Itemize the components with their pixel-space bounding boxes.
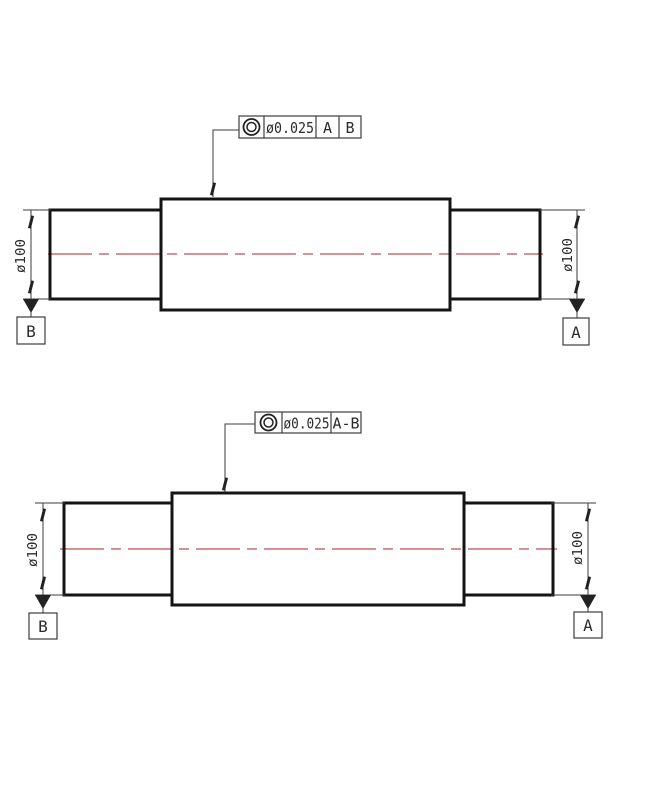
- diameter-dim-label: ø100: [570, 531, 586, 565]
- dimension-tick: [40, 576, 46, 589]
- datum-box-label: B: [38, 617, 48, 636]
- datum-box-label: A: [571, 323, 581, 342]
- fcf-leader-line: [213, 130, 239, 197]
- fcf-leader-line: [225, 424, 255, 492]
- dimension-left: ø100 B: [13, 210, 51, 344]
- dimension-tick: [28, 280, 34, 293]
- dimension-tick: [574, 215, 580, 228]
- fcf-datum-ref: A: [323, 119, 332, 137]
- leader-tick: [210, 182, 216, 195]
- datum-triangle: [23, 299, 39, 313]
- dimension-tick: [585, 576, 591, 589]
- shaft-drawing-bottom: ø100 B ø100 A: [25, 412, 602, 639]
- diameter-dim-label: ø100: [560, 238, 576, 272]
- fcf-tolerance-value: ø0.025: [266, 119, 314, 137]
- dimension-tick: [40, 508, 46, 521]
- datum-triangle: [580, 595, 596, 609]
- datum-triangle: [569, 299, 585, 313]
- dimension-tick: [574, 280, 580, 293]
- fcf-datum-ref: B: [345, 119, 354, 137]
- datum-triangle: [35, 595, 51, 609]
- feature-control-frame-top: ø0.025 A B: [239, 116, 361, 138]
- dimension-right: ø100 A: [539, 210, 589, 345]
- datum-box-label: A: [583, 616, 593, 635]
- diameter-dim-label: ø100: [13, 239, 29, 273]
- shaft-drawing-top: ø100 B ø100 A: [13, 116, 589, 345]
- fcf-datum-ref: A-B: [332, 415, 359, 433]
- dimension-tick: [585, 508, 591, 521]
- dimension-right: ø100 A: [551, 503, 602, 638]
- fcf-tolerance-value: ø0.025: [284, 415, 330, 433]
- dimension-tick: [28, 215, 34, 228]
- diameter-dim-label: ø100: [25, 533, 41, 567]
- drawing-canvas: ø100 B ø100 A: [0, 0, 659, 800]
- dimension-left: ø100 B: [25, 503, 65, 639]
- leader-tick: [222, 477, 228, 490]
- datum-box-label: B: [26, 322, 36, 341]
- feature-control-frame-bottom: ø0.025 A-B: [255, 412, 361, 433]
